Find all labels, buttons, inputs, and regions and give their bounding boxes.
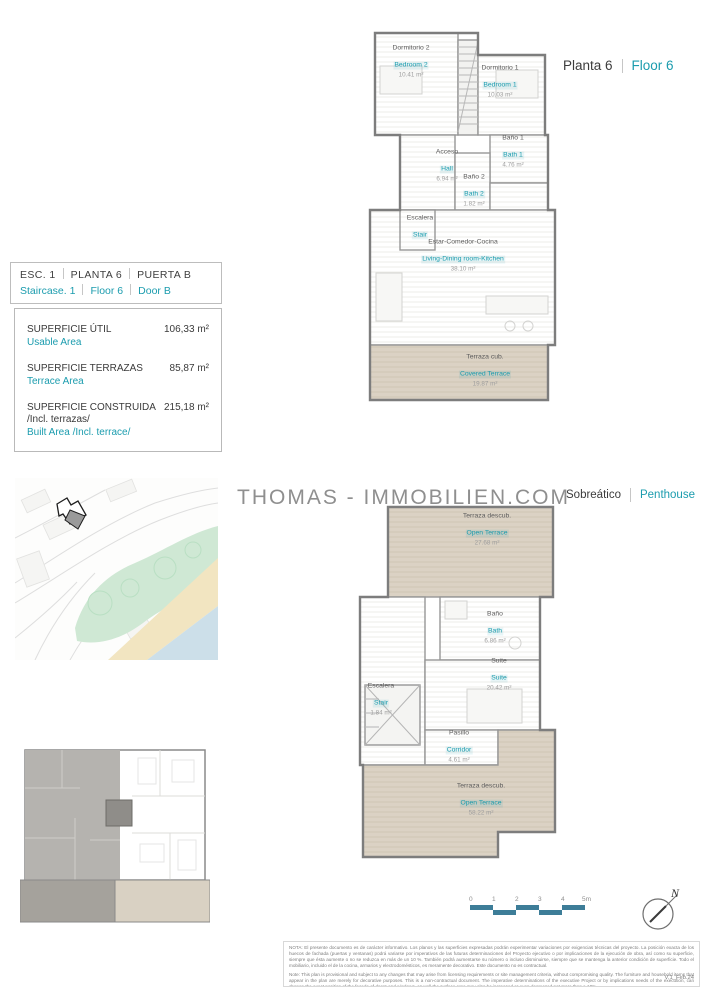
svg-text:0: 0: [469, 896, 473, 903]
unit-header-es: ESC. 1PLANTA 6PUERTA B: [20, 268, 212, 281]
planta6-title-en: Floor 6: [632, 58, 674, 73]
esc-label: ESC. 1: [20, 269, 56, 281]
built-area-label: SUPERFICIE CONSTRUIDA: [27, 402, 156, 413]
usable-area-label: SUPERFICIE ÚTIL: [27, 324, 111, 335]
penthouse-title-es: Sobreático: [566, 489, 621, 501]
built-area-value: 215,18 m²: [164, 402, 209, 413]
room-label-bedroom1: Dormitorio 1 Bedroom 1 10.03 m²: [481, 65, 518, 100]
key-plan: [20, 748, 210, 928]
room-label-bedroom2: Dormitorio 2 Bedroom 2 10.41 m²: [392, 45, 429, 80]
room-label-living: Estar-Comedor-Cocina Living-Dining room-…: [421, 239, 505, 274]
svg-text:2: 2: [515, 896, 519, 903]
puerta-label: PUERTA B: [137, 269, 191, 281]
divider: [130, 284, 131, 295]
terrace-area-row: SUPERFICIE TERRAZAS 85,87 m² Terrace Are…: [27, 363, 209, 387]
built-area-row: SUPERFICIE CONSTRUIDA 215,18 m² /Incl. t…: [27, 402, 209, 438]
disclaimer-spanish: NOTA: El presente documento es de caráct…: [289, 945, 694, 969]
built-area-label-es2: /Incl. terrazas/: [27, 414, 209, 425]
site-map: [15, 478, 218, 660]
north-arrow: N: [636, 884, 688, 936]
usable-area-row: SUPERFICIE ÚTIL 106,33 m² Usable Area: [27, 324, 209, 348]
watermark: THOMAS - IMMOBILIEN.COM: [237, 486, 570, 510]
key-plan-terrace-other: [20, 880, 115, 922]
room-label-corridor: Pasillo Corridor 4.61 m²: [446, 730, 473, 765]
scale-bar: 0 1 2 3 4 5m: [468, 892, 596, 920]
door-label: Door B: [138, 285, 171, 297]
room-label-bath2: Baño 2 Bath 2 1.82 m²: [463, 174, 485, 209]
terrace-area-label: SUPERFICIE TERRAZAS: [27, 363, 143, 374]
key-plan-stair-core: [106, 800, 132, 826]
scale-bar-labels: 0 1 2 3 4 5m: [469, 896, 591, 903]
room-label-hall: Acceso Hall 6.94 m²: [436, 149, 458, 184]
svg-text:5m: 5m: [582, 896, 591, 903]
room-label-open-terrace-bottom: Terraza descub. Open Terrace 58.22 m²: [457, 783, 505, 818]
room-label-open-terrace-top: Terraza descub. Open Terrace 27.68 m²: [463, 513, 511, 548]
unit-header-en: Staircase. 1Floor 6Door B: [20, 284, 212, 297]
planta-label: PLANTA 6: [71, 269, 122, 281]
room-label-covered-terrace: Terraza cub. Covered Terrace 19.87 m²: [459, 354, 511, 389]
floorplan-sheet: { "colors": { "accent": "#1b9cae", "terr…: [0, 0, 706, 1000]
divider: [129, 268, 130, 279]
svg-text:4: 4: [561, 896, 565, 903]
title-divider: [622, 59, 623, 73]
scale-bar-segments: [470, 905, 585, 915]
planta6-title-es: Planta 6: [563, 58, 613, 73]
planta6-title: Planta 6 Floor 6: [563, 58, 674, 73]
penthouse-title: Sobreático Penthouse: [566, 488, 695, 502]
penthouse-title-en: Penthouse: [640, 489, 695, 501]
divider: [82, 284, 83, 295]
room-label-bath1: Baño 1 Bath 1 4.76 m²: [502, 135, 524, 170]
svg-text:3: 3: [538, 896, 542, 903]
usable-area-value: 106,33 m²: [164, 324, 209, 335]
surface-info-box: SUPERFICIE ÚTIL 106,33 m² Usable Area SU…: [14, 308, 222, 452]
unit-header: ESC. 1PLANTA 6PUERTA B Staircase. 1Floor…: [10, 262, 222, 304]
staircase-label: Staircase. 1: [20, 285, 75, 297]
plan-version: V.1_Feb.24: [665, 975, 694, 981]
floor-label: Floor 6: [90, 285, 123, 297]
room-label-stair-ph: Escalera Stair 1.84 m²: [368, 683, 394, 718]
divider: [63, 268, 64, 279]
built-area-label-en: Built Area /Incl. terrace/: [27, 427, 209, 438]
north-label: N: [670, 886, 680, 900]
usable-area-label-en: Usable Area: [27, 337, 209, 348]
svg-text:1: 1: [492, 896, 496, 903]
room-label-bath-ph: Baño Bath 6.86 m²: [484, 611, 505, 646]
disclaimer-english: Note: This plan is provisional and subje…: [289, 972, 694, 987]
title-divider: [630, 488, 631, 502]
terrace-area-value: 85,87 m²: [170, 363, 209, 374]
room-label-suite: Suite Suite 20.42 m²: [487, 658, 512, 693]
north-needle: [650, 906, 666, 922]
terrace-area-label-en: Terrace Area: [27, 376, 209, 387]
disclaimer-box: NOTA: El presente documento es de caráct…: [283, 941, 700, 987]
